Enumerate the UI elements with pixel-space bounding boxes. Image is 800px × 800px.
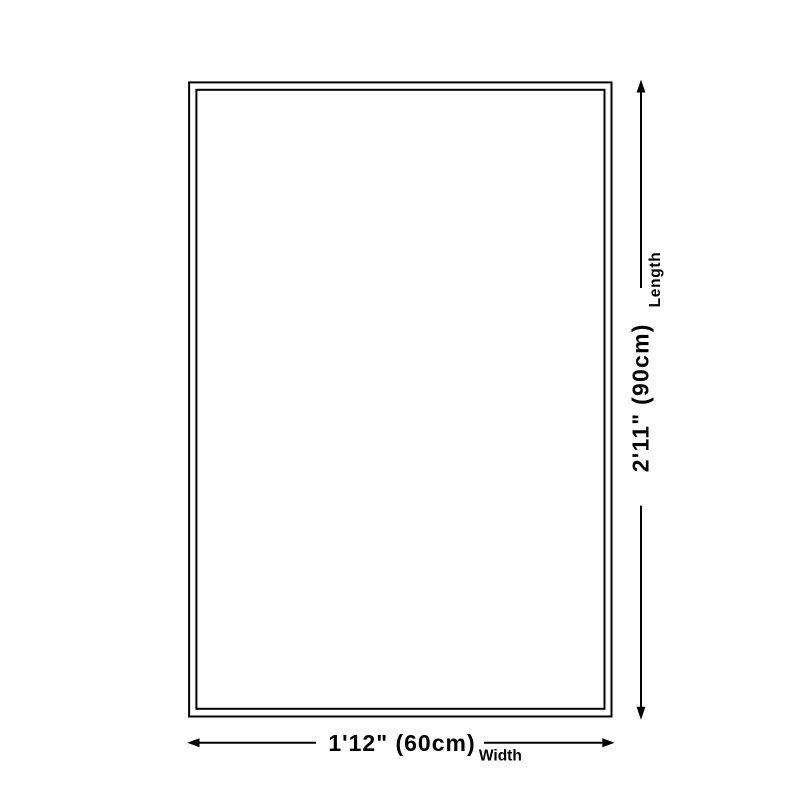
svg-text:2'11" (90cm): 2'11" (90cm) [628,323,654,472]
svg-text:Length: Length [647,252,664,308]
svg-text:Width: Width [479,748,522,765]
svg-text:1'12" (60cm): 1'12" (60cm) [328,730,475,756]
